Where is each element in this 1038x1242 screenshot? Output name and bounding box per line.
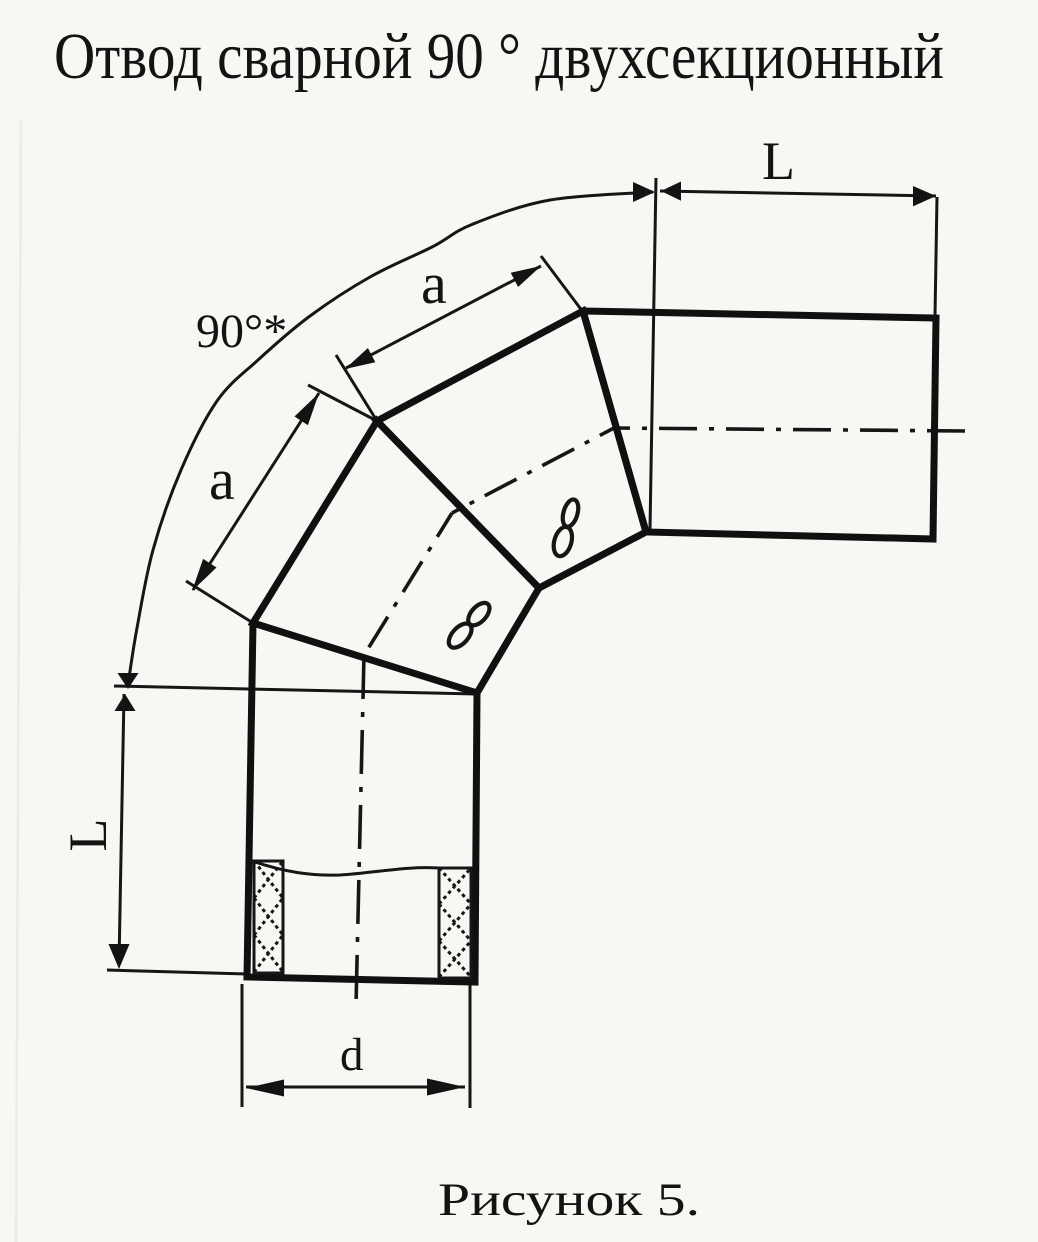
svg-text:90°*: 90°* — [196, 305, 287, 358]
svg-text:Рисунок 5.: Рисунок 5. — [438, 1174, 700, 1226]
svg-text:d: d — [340, 1029, 364, 1081]
svg-text:a: a — [421, 251, 447, 316]
svg-text:a: a — [209, 447, 235, 512]
svg-text:Отвод сварной 90 ° двухсекцион: Отвод сварной 90 ° двухсекционный — [54, 20, 944, 93]
svg-text:L: L — [762, 131, 795, 191]
svg-text:L: L — [58, 819, 118, 852]
